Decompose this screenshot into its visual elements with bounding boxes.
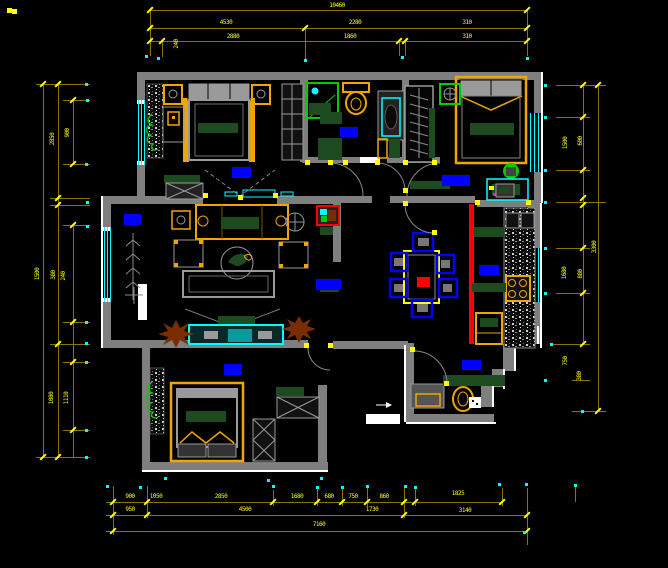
dimension-text: 3140 — [459, 508, 471, 514]
room-label-bedroom-2 — [442, 175, 470, 186]
defpoint-dot — [544, 84, 547, 87]
dimension-line — [73, 100, 74, 164]
defpoint-dot — [498, 483, 501, 486]
defpoint-dot — [366, 485, 369, 488]
dimension-text: 1500 — [563, 137, 569, 149]
dimension-line — [150, 10, 527, 11]
hinge-dot — [375, 160, 380, 165]
hinge-dot — [403, 160, 408, 165]
defpoint-dot — [401, 56, 404, 59]
dimension-text: 1680 — [562, 267, 568, 279]
dimension-text: 750 — [348, 494, 357, 500]
dimension-overlay: 1046045302280310288018603102402850900150… — [0, 0, 668, 568]
dimension-line — [162, 41, 163, 57]
hinge-dot — [343, 160, 348, 165]
defpoint-dot — [544, 247, 547, 250]
dimension-text: 4530 — [220, 20, 232, 26]
dimension-text: 1730 — [366, 507, 378, 513]
dimension-text: 240 — [174, 39, 180, 48]
defpoint-dot — [320, 477, 323, 480]
room-label-balcony-bay — [124, 214, 141, 225]
dimension-text: 380 — [577, 371, 583, 380]
defpoint-dot — [574, 484, 577, 487]
dimension-text: 1080 — [49, 392, 55, 404]
dimension-line — [150, 10, 151, 56]
defpoint-dot — [164, 477, 167, 480]
defpoint-dot — [267, 479, 270, 482]
hinge-dot — [328, 343, 333, 348]
defpoint-dot — [304, 59, 307, 62]
dimension-text: 2880 — [227, 34, 239, 40]
room-label-kitchen — [479, 265, 499, 275]
dimension-line — [150, 41, 527, 42]
dimension-line — [527, 488, 528, 545]
dimension-text: 2850 — [50, 133, 56, 145]
defpoint-dot — [86, 99, 89, 102]
dimension-line — [405, 41, 406, 56]
dimension-line — [150, 28, 527, 29]
dimension-line — [399, 41, 400, 56]
dimension-text: 240 — [61, 271, 67, 280]
dimension-line — [106, 515, 527, 516]
dimension-text: 1860 — [344, 34, 356, 40]
dimension-text: 1050 — [150, 494, 162, 500]
room-label-bedroom-3 — [224, 364, 242, 375]
dimension-line — [106, 531, 527, 532]
hinge-dot — [305, 160, 310, 165]
dimension-line — [305, 28, 306, 59]
dimension-text: 3300 — [592, 241, 598, 253]
defpoint-dot — [544, 169, 547, 172]
defpoint-dot — [85, 342, 88, 345]
hinge-dot — [403, 201, 408, 206]
dimension-line — [43, 84, 44, 457]
dimension-text: 900 — [65, 128, 71, 137]
hinge-dot — [403, 188, 408, 193]
dimension-text: 600 — [578, 136, 584, 145]
defpoint-dot — [272, 485, 275, 488]
defpoint-dot — [316, 486, 319, 489]
dimension-text: 1500 — [35, 268, 41, 280]
dimension-line — [556, 293, 590, 294]
defpoint-dot — [550, 343, 553, 346]
hinge-dot — [444, 381, 449, 386]
defpoint-dot — [85, 83, 88, 86]
hinge-dot — [328, 160, 333, 165]
dimension-text: 900 — [125, 494, 134, 500]
defpoint-dot — [85, 321, 88, 324]
hinge-dot — [475, 200, 480, 205]
dimension-text: 950 — [125, 507, 134, 513]
defpoint-dot — [106, 485, 109, 488]
cad-drawing-canvas[interactable]: 1046045302280310288018603102402850900150… — [0, 0, 668, 568]
dimension-text: 2280 — [349, 20, 361, 26]
dimension-text: 310 — [462, 20, 471, 26]
dimension-text: 1680 — [291, 494, 303, 500]
defpoint-dot — [544, 116, 547, 119]
dimension-line — [527, 10, 528, 56]
defpoint-dot — [85, 163, 88, 166]
hinge-dot — [410, 347, 415, 352]
dimension-line — [598, 85, 599, 411]
dimension-text: 2850 — [215, 494, 227, 500]
hinge-dot — [432, 230, 437, 235]
defpoint-dot — [581, 410, 584, 413]
room-label-bedroom-1 — [232, 167, 251, 178]
hinge-dot — [304, 343, 309, 348]
defpoint-dot — [341, 486, 344, 489]
dimension-text: 4500 — [239, 507, 251, 513]
defpoint-dot — [544, 292, 547, 295]
dimension-text: 1110 — [64, 392, 70, 404]
dimension-line — [73, 225, 74, 457]
room-label-bathroom — [340, 127, 358, 137]
dimension-line — [556, 170, 590, 171]
defpoint-dot — [139, 486, 142, 489]
dimension-line — [556, 202, 606, 203]
defpoint-dot — [544, 379, 547, 382]
defpoint-dot — [525, 483, 528, 486]
defpoint-dot — [86, 201, 89, 204]
dimension-text: 860 — [379, 494, 388, 500]
dimension-line — [583, 85, 584, 344]
dimension-line — [556, 248, 590, 249]
dimension-line — [106, 502, 502, 503]
defpoint-dot — [523, 531, 526, 534]
hinge-dot — [526, 200, 531, 205]
defpoint-dot — [526, 57, 529, 60]
defpoint-dot — [85, 429, 88, 432]
room-label-entry — [462, 360, 481, 370]
dimension-text: 680 — [324, 494, 333, 500]
defpoint-dot — [145, 55, 148, 58]
dimension-text: 750 — [563, 356, 569, 365]
dimension-text: 7160 — [313, 522, 325, 528]
dimension-line — [556, 117, 590, 118]
hinge-dot — [273, 193, 278, 198]
defpoint-dot — [86, 225, 89, 228]
dimension-line — [502, 488, 503, 506]
hinge-dot — [203, 193, 208, 198]
hinge-dot — [432, 160, 437, 165]
dimension-text: 880 — [578, 269, 584, 278]
defpoint-dot — [85, 361, 88, 364]
room-label-living-room — [316, 279, 341, 290]
defpoint-dot — [85, 456, 88, 459]
defpoint-dot — [414, 486, 417, 489]
defpoint-dot — [157, 57, 160, 60]
dimension-text: 10460 — [329, 3, 345, 9]
hinge-dot — [238, 195, 243, 200]
defpoint-dot — [404, 485, 407, 488]
dimension-text: 1825 — [452, 491, 464, 497]
defpoint-dot — [544, 201, 547, 204]
dimension-line — [572, 411, 606, 412]
dimension-text: 310 — [462, 34, 471, 40]
hinge-dot — [12, 9, 17, 14]
dimension-line — [58, 84, 59, 457]
dimension-text: 380 — [51, 270, 57, 279]
